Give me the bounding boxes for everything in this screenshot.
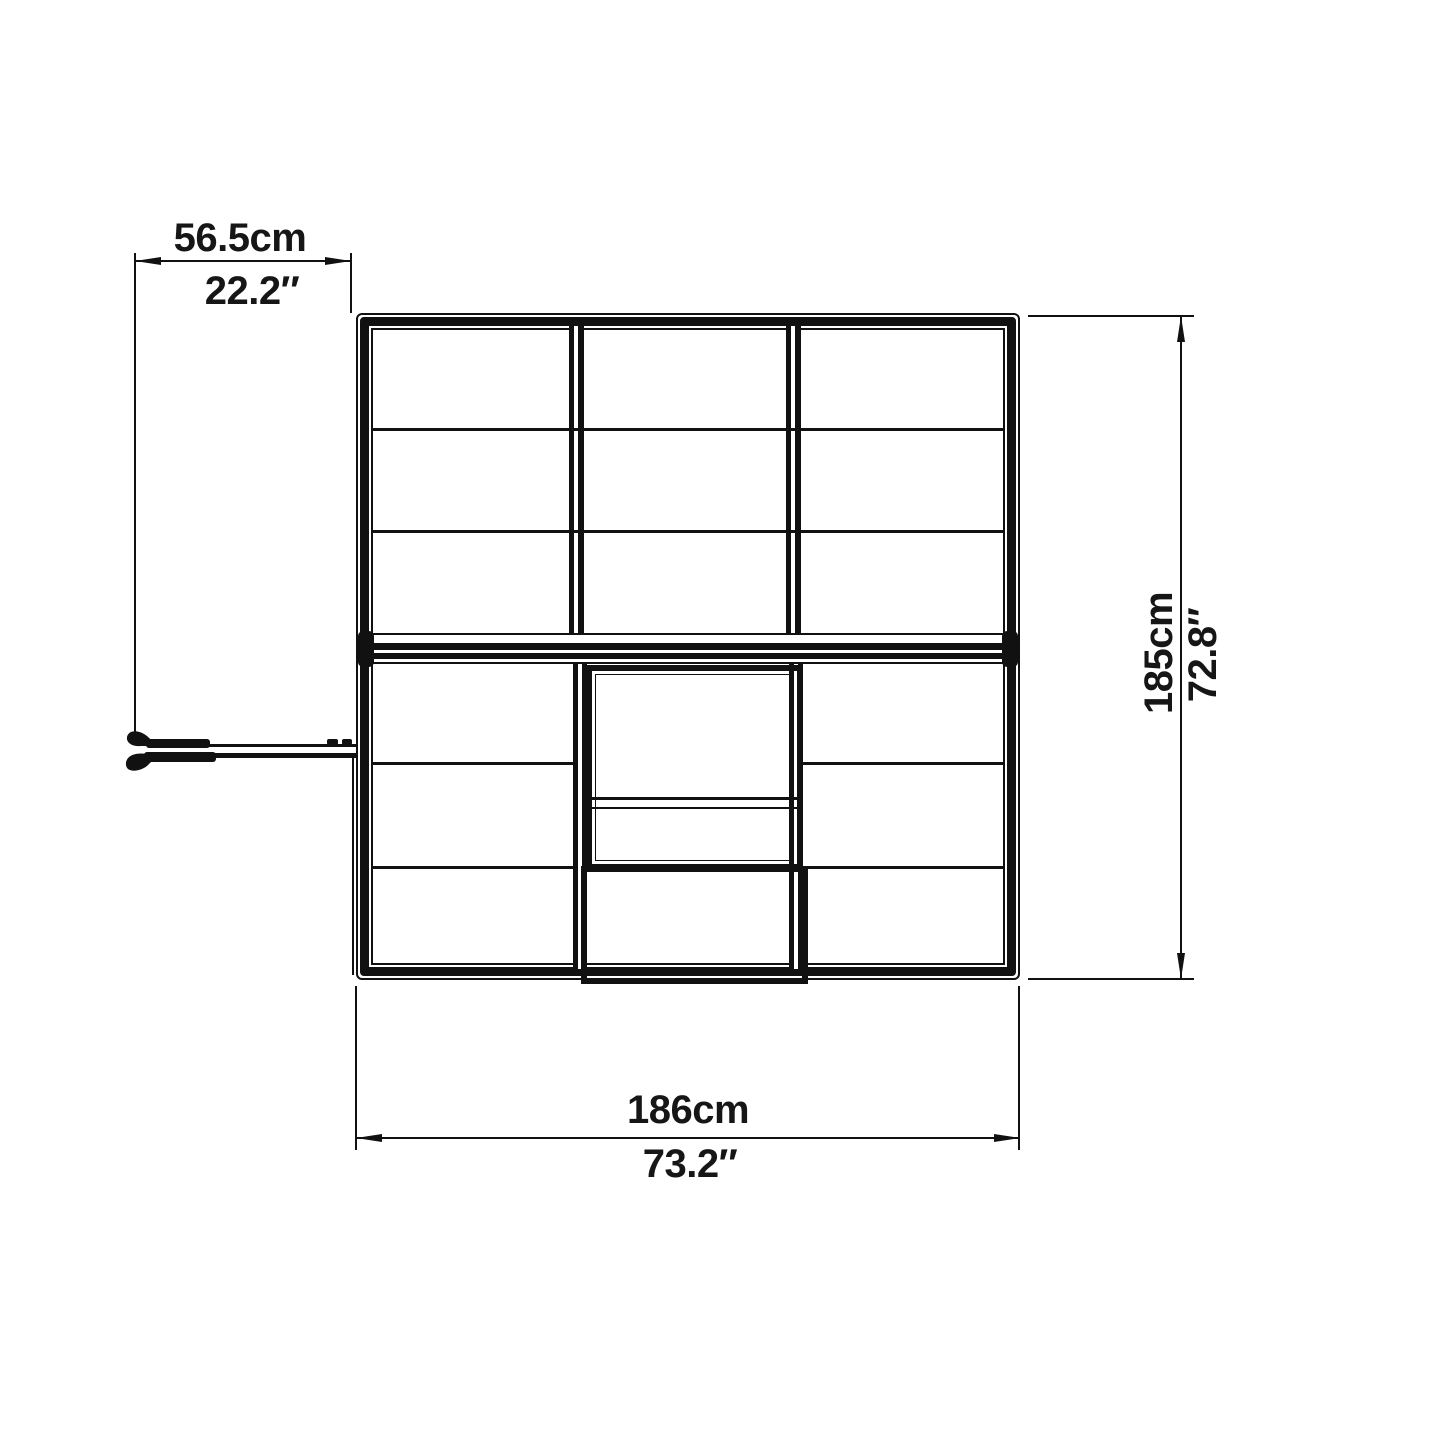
greenhouse-top-view [356, 313, 1020, 980]
width-dimension-line [356, 1137, 1020, 1139]
lower-middle-panel [581, 866, 808, 984]
lower-left-panel-seam-2 [371, 866, 573, 869]
door-latch-hook-top [127, 731, 151, 746]
width-imperial-label: 73.2″ [550, 1142, 830, 1186]
door-width-extension-line-left [134, 253, 136, 733]
roof-vent-seam-echo [592, 807, 797, 809]
roof-vent-inner-frame [595, 674, 794, 861]
width-extension-line-left [355, 986, 357, 1150]
width-extension-line-right [1018, 986, 1020, 1150]
door-latch-hook-bottom [126, 753, 153, 770]
upper-panel-seam-1 [371, 428, 1005, 431]
open-door [113, 710, 363, 780]
door-width-imperial-label: 22.2″ [132, 269, 372, 313]
depth-metric-label: 185cm [1137, 553, 1181, 753]
depth-imperial-label: 72.8″ [1181, 555, 1225, 755]
greenhouse-dimension-diagram: 56.5cm 22.2″ 185cm 72.8″ 186cm 73.2″ [0, 0, 1440, 1440]
door-handle-bar-top [146, 739, 210, 748]
ridge-end-connector-left [358, 631, 374, 667]
width-arrow-right [994, 1134, 1020, 1142]
width-arrow-left [356, 1134, 382, 1142]
depth-arrow-up [1177, 316, 1185, 342]
door-width-metric-label: 56.5cm [120, 216, 360, 260]
roof-glazing-bar-left [569, 326, 584, 635]
door-frame-edge-line [352, 757, 354, 975]
depth-arrow-down [1177, 953, 1185, 979]
roof-ridge-beam [360, 633, 1016, 664]
width-metric-label: 186cm [548, 1088, 828, 1132]
depth-extension-line-bottom [1028, 978, 1194, 980]
lower-right-panel-seam-1 [803, 762, 1005, 765]
lower-right-panel-seam-2 [803, 866, 1005, 869]
door-handle-bar-bottom [144, 752, 216, 762]
door-hinge-2 [342, 739, 352, 745]
door-width-dimension-line [135, 260, 351, 262]
roof-vent-window [586, 665, 803, 870]
depth-extension-line-top [1028, 315, 1194, 317]
roof-vent-seam [592, 797, 797, 800]
upper-panel-seam-2 [371, 530, 1005, 533]
roof-glazing-bar-right [786, 326, 801, 635]
door-hinge-1 [327, 739, 338, 745]
ridge-end-connector-right [1002, 631, 1018, 667]
lower-left-panel-seam-1 [371, 762, 573, 765]
door-slab-bottom-line [210, 753, 358, 758]
